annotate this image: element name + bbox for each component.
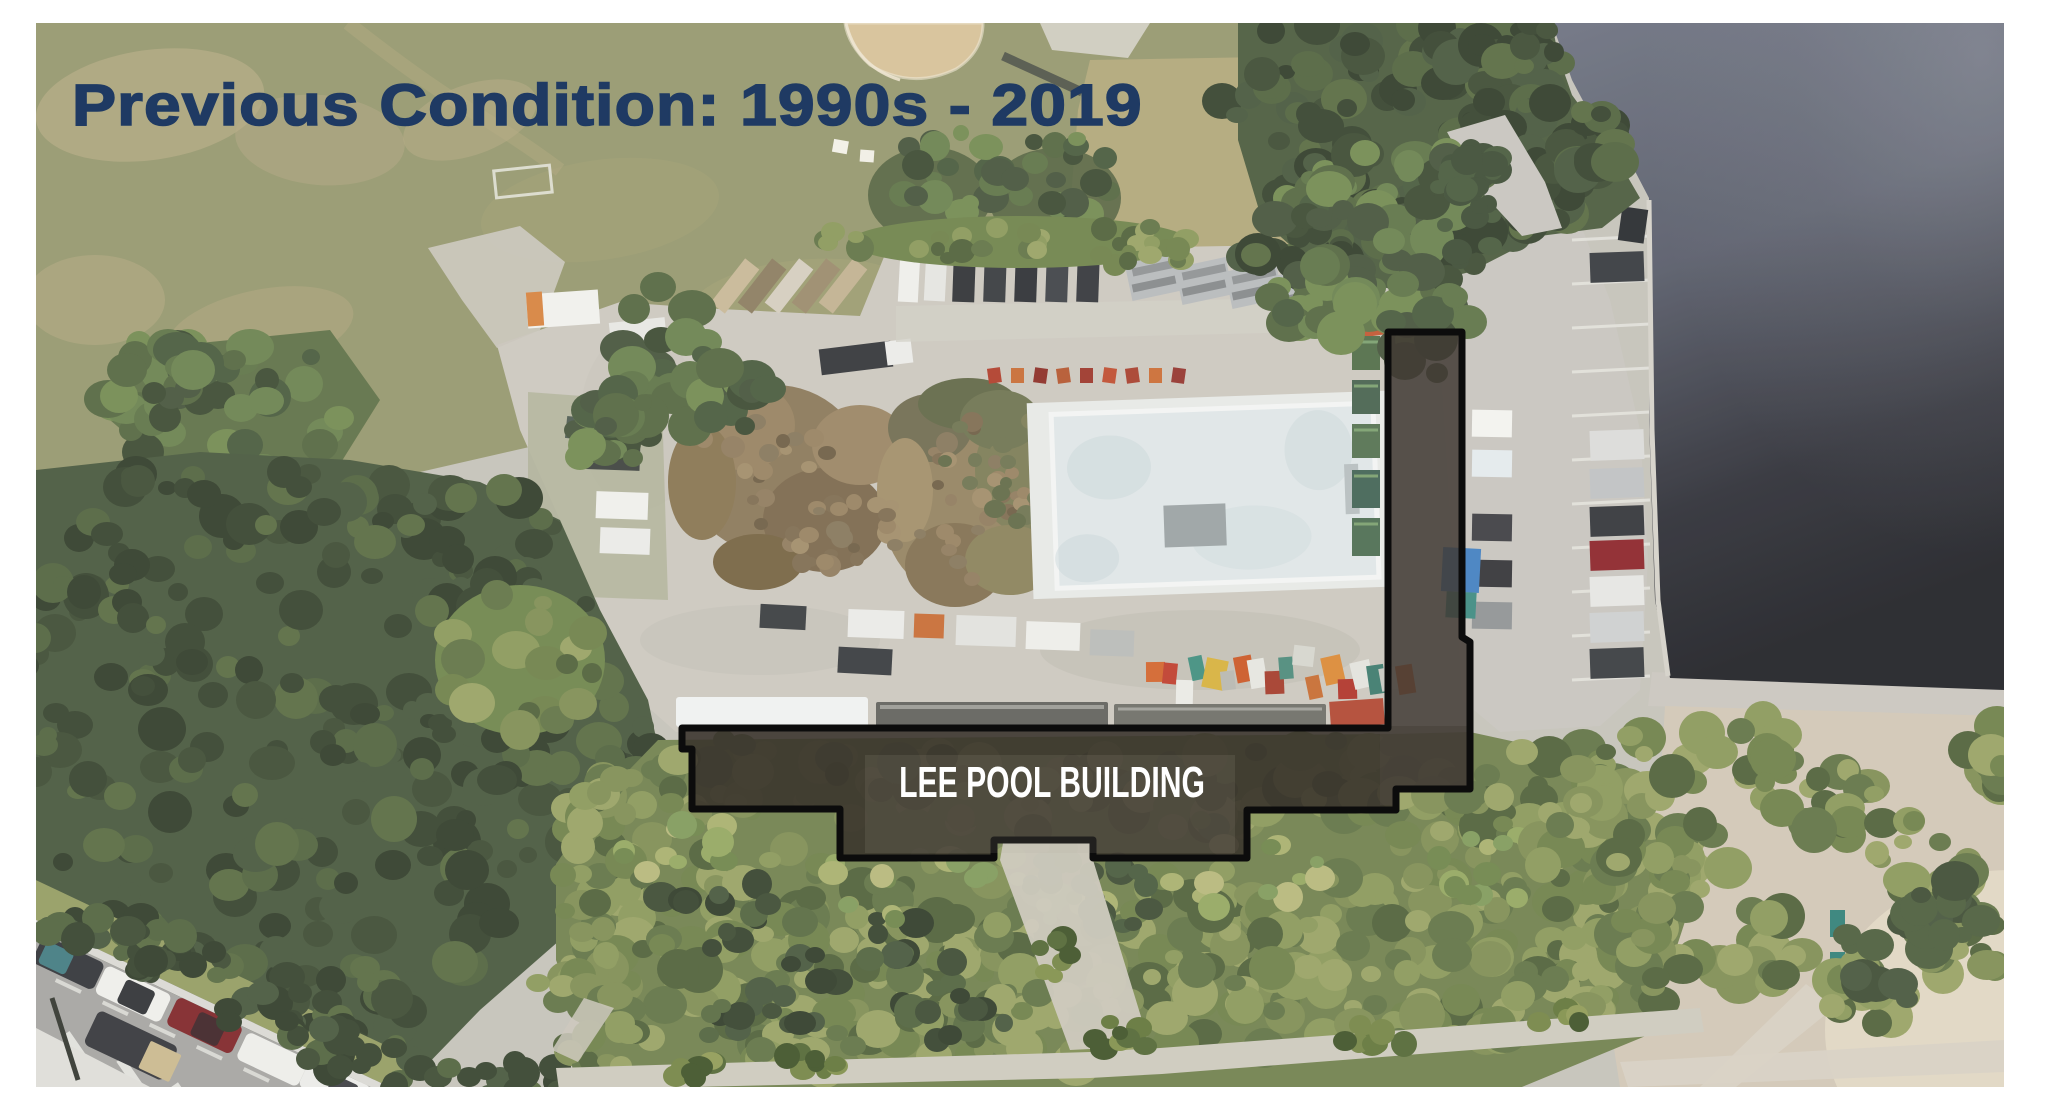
- svg-text:Previous Condition: 1990s - 20: Previous Condition: 1990s - 2019: [72, 74, 1143, 138]
- svg-text:LEE POOL BUILDING: LEE POOL BUILDING: [899, 757, 1205, 806]
